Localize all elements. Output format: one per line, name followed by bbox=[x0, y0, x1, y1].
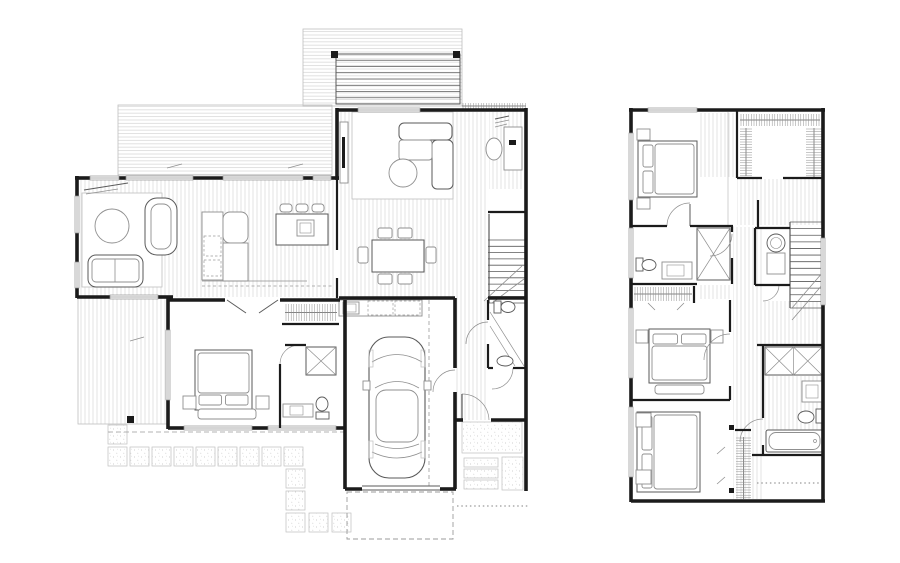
living-sofa-back bbox=[399, 123, 452, 140]
dining-chair bbox=[378, 228, 392, 238]
dining-chair bbox=[358, 247, 368, 263]
lounge-armchair bbox=[145, 198, 177, 255]
stepping-stone bbox=[152, 447, 171, 466]
bed-frame bbox=[649, 329, 710, 383]
corridor-floorboards bbox=[733, 227, 762, 499]
porch-paving bbox=[462, 422, 522, 453]
robe-door-mark bbox=[677, 303, 684, 310]
stepping-stone bbox=[286, 491, 305, 510]
wc-door-arc bbox=[763, 285, 779, 301]
powder-basin bbox=[497, 356, 513, 366]
ground-floor-plan bbox=[75, 29, 528, 539]
study-chair bbox=[486, 138, 502, 160]
porch-side-paving bbox=[502, 457, 523, 490]
stepping-stone bbox=[130, 447, 149, 466]
powder-toilet-bowl bbox=[501, 302, 515, 313]
hall-floorboards bbox=[700, 113, 736, 177]
ensuite-door-arc bbox=[280, 345, 299, 364]
bed-frame bbox=[195, 350, 252, 410]
bed-frame bbox=[638, 141, 697, 197]
pergola-post bbox=[453, 51, 460, 58]
kitchen-base-cabinets bbox=[223, 243, 248, 281]
bathtub bbox=[766, 430, 823, 452]
dining-chair bbox=[426, 247, 436, 263]
bedroom3-bed bbox=[649, 329, 710, 383]
robe-door-mark bbox=[717, 447, 725, 454]
bedside-table bbox=[183, 396, 196, 409]
bedside-table bbox=[636, 413, 651, 427]
toilet-bowl bbox=[798, 411, 814, 423]
kitchen-island bbox=[276, 214, 328, 245]
shower-niche bbox=[802, 381, 822, 402]
stepping-stone bbox=[218, 447, 237, 466]
bedside-table bbox=[636, 330, 648, 343]
upper-floor-plan bbox=[629, 108, 825, 502]
dining-chair bbox=[378, 274, 392, 284]
powder-cistern bbox=[494, 301, 501, 313]
deck-left bbox=[78, 298, 168, 424]
stepping-stone bbox=[108, 425, 127, 444]
bed-end-bench bbox=[198, 409, 256, 419]
tub-rim bbox=[766, 430, 823, 452]
robe-door-mark bbox=[717, 477, 725, 484]
bedside-table bbox=[636, 470, 651, 484]
stepping-stone bbox=[108, 447, 127, 466]
car-mirror bbox=[424, 381, 431, 390]
wir-hanging-rail bbox=[740, 114, 820, 126]
dining-chair bbox=[398, 228, 412, 238]
dining-table bbox=[372, 240, 424, 272]
kitchen-counter bbox=[223, 212, 248, 243]
floor-plan-drawing bbox=[0, 0, 900, 563]
hall-floorboards bbox=[456, 112, 488, 420]
stepping-stone bbox=[332, 513, 351, 532]
robe-hanging-rail bbox=[634, 287, 692, 301]
kitchen-tall-units bbox=[202, 212, 223, 280]
stepping-stone bbox=[262, 447, 281, 466]
toilet-cistern bbox=[316, 412, 329, 419]
double-door-leaf bbox=[259, 300, 278, 313]
stepping-stone bbox=[284, 447, 303, 466]
deck-top bbox=[303, 29, 462, 106]
car-mirror bbox=[363, 381, 370, 390]
door-jamb bbox=[729, 425, 734, 430]
living-coffee-table bbox=[389, 159, 417, 187]
stepping-stone bbox=[174, 447, 193, 466]
living-sofa-seat bbox=[399, 140, 432, 160]
bar-stool bbox=[312, 204, 324, 212]
lounge-coffee-table bbox=[95, 209, 129, 243]
robe-hanging-rail bbox=[285, 304, 337, 321]
ensuite-shower bbox=[697, 228, 730, 280]
stepping-stone bbox=[286, 469, 305, 488]
study-desk bbox=[504, 127, 522, 170]
toilet-bowl bbox=[316, 397, 328, 411]
powder-door-arc bbox=[492, 368, 513, 389]
entry-step bbox=[464, 458, 498, 467]
living-chaise bbox=[432, 140, 453, 189]
double-door-leaf bbox=[227, 300, 246, 313]
bathroom-double-shower bbox=[765, 347, 822, 375]
stepping-stone bbox=[309, 513, 328, 532]
bedside-table bbox=[637, 129, 650, 140]
tv-screen bbox=[342, 137, 345, 168]
bar-stool bbox=[296, 204, 308, 212]
pergola-post bbox=[331, 51, 338, 58]
wir-hanging-rail bbox=[806, 128, 822, 178]
stepping-stone bbox=[196, 447, 215, 466]
corridor-floorboards bbox=[698, 285, 732, 299]
bedroom-door-arc bbox=[667, 203, 690, 226]
floor-plan-canvas bbox=[0, 0, 900, 563]
toilet-bowl bbox=[642, 260, 656, 271]
landing-floorboards bbox=[737, 179, 822, 225]
ensuite-shower bbox=[306, 347, 336, 375]
wir-hanging-rail bbox=[740, 128, 752, 176]
staircase-treads bbox=[790, 222, 823, 308]
bedroom1-bed bbox=[195, 350, 252, 410]
entry-step bbox=[464, 469, 498, 478]
driveway-dashed bbox=[347, 492, 453, 539]
entry-step bbox=[464, 480, 498, 489]
bar-stool bbox=[280, 204, 292, 212]
wc-vanity bbox=[767, 253, 785, 274]
car-body bbox=[369, 337, 425, 478]
bed-end-bench bbox=[655, 385, 704, 394]
door-jamb bbox=[729, 488, 734, 493]
screen-band bbox=[462, 103, 526, 109]
staircase-treads bbox=[488, 240, 526, 303]
bedside-table bbox=[711, 330, 723, 343]
wc-basin bbox=[767, 234, 785, 252]
garage-door-arc bbox=[433, 370, 455, 392]
robe-door-mark bbox=[648, 303, 655, 310]
stepping-stone bbox=[286, 513, 305, 532]
stepping-stone bbox=[240, 447, 259, 466]
desk-accessory bbox=[509, 140, 516, 145]
ensuite-vanity bbox=[662, 262, 692, 279]
bedside-table bbox=[256, 396, 269, 409]
bedroom2-bed bbox=[638, 141, 697, 197]
deck-post bbox=[127, 416, 134, 423]
dining-chair bbox=[398, 274, 412, 284]
bedside-table bbox=[637, 198, 650, 209]
